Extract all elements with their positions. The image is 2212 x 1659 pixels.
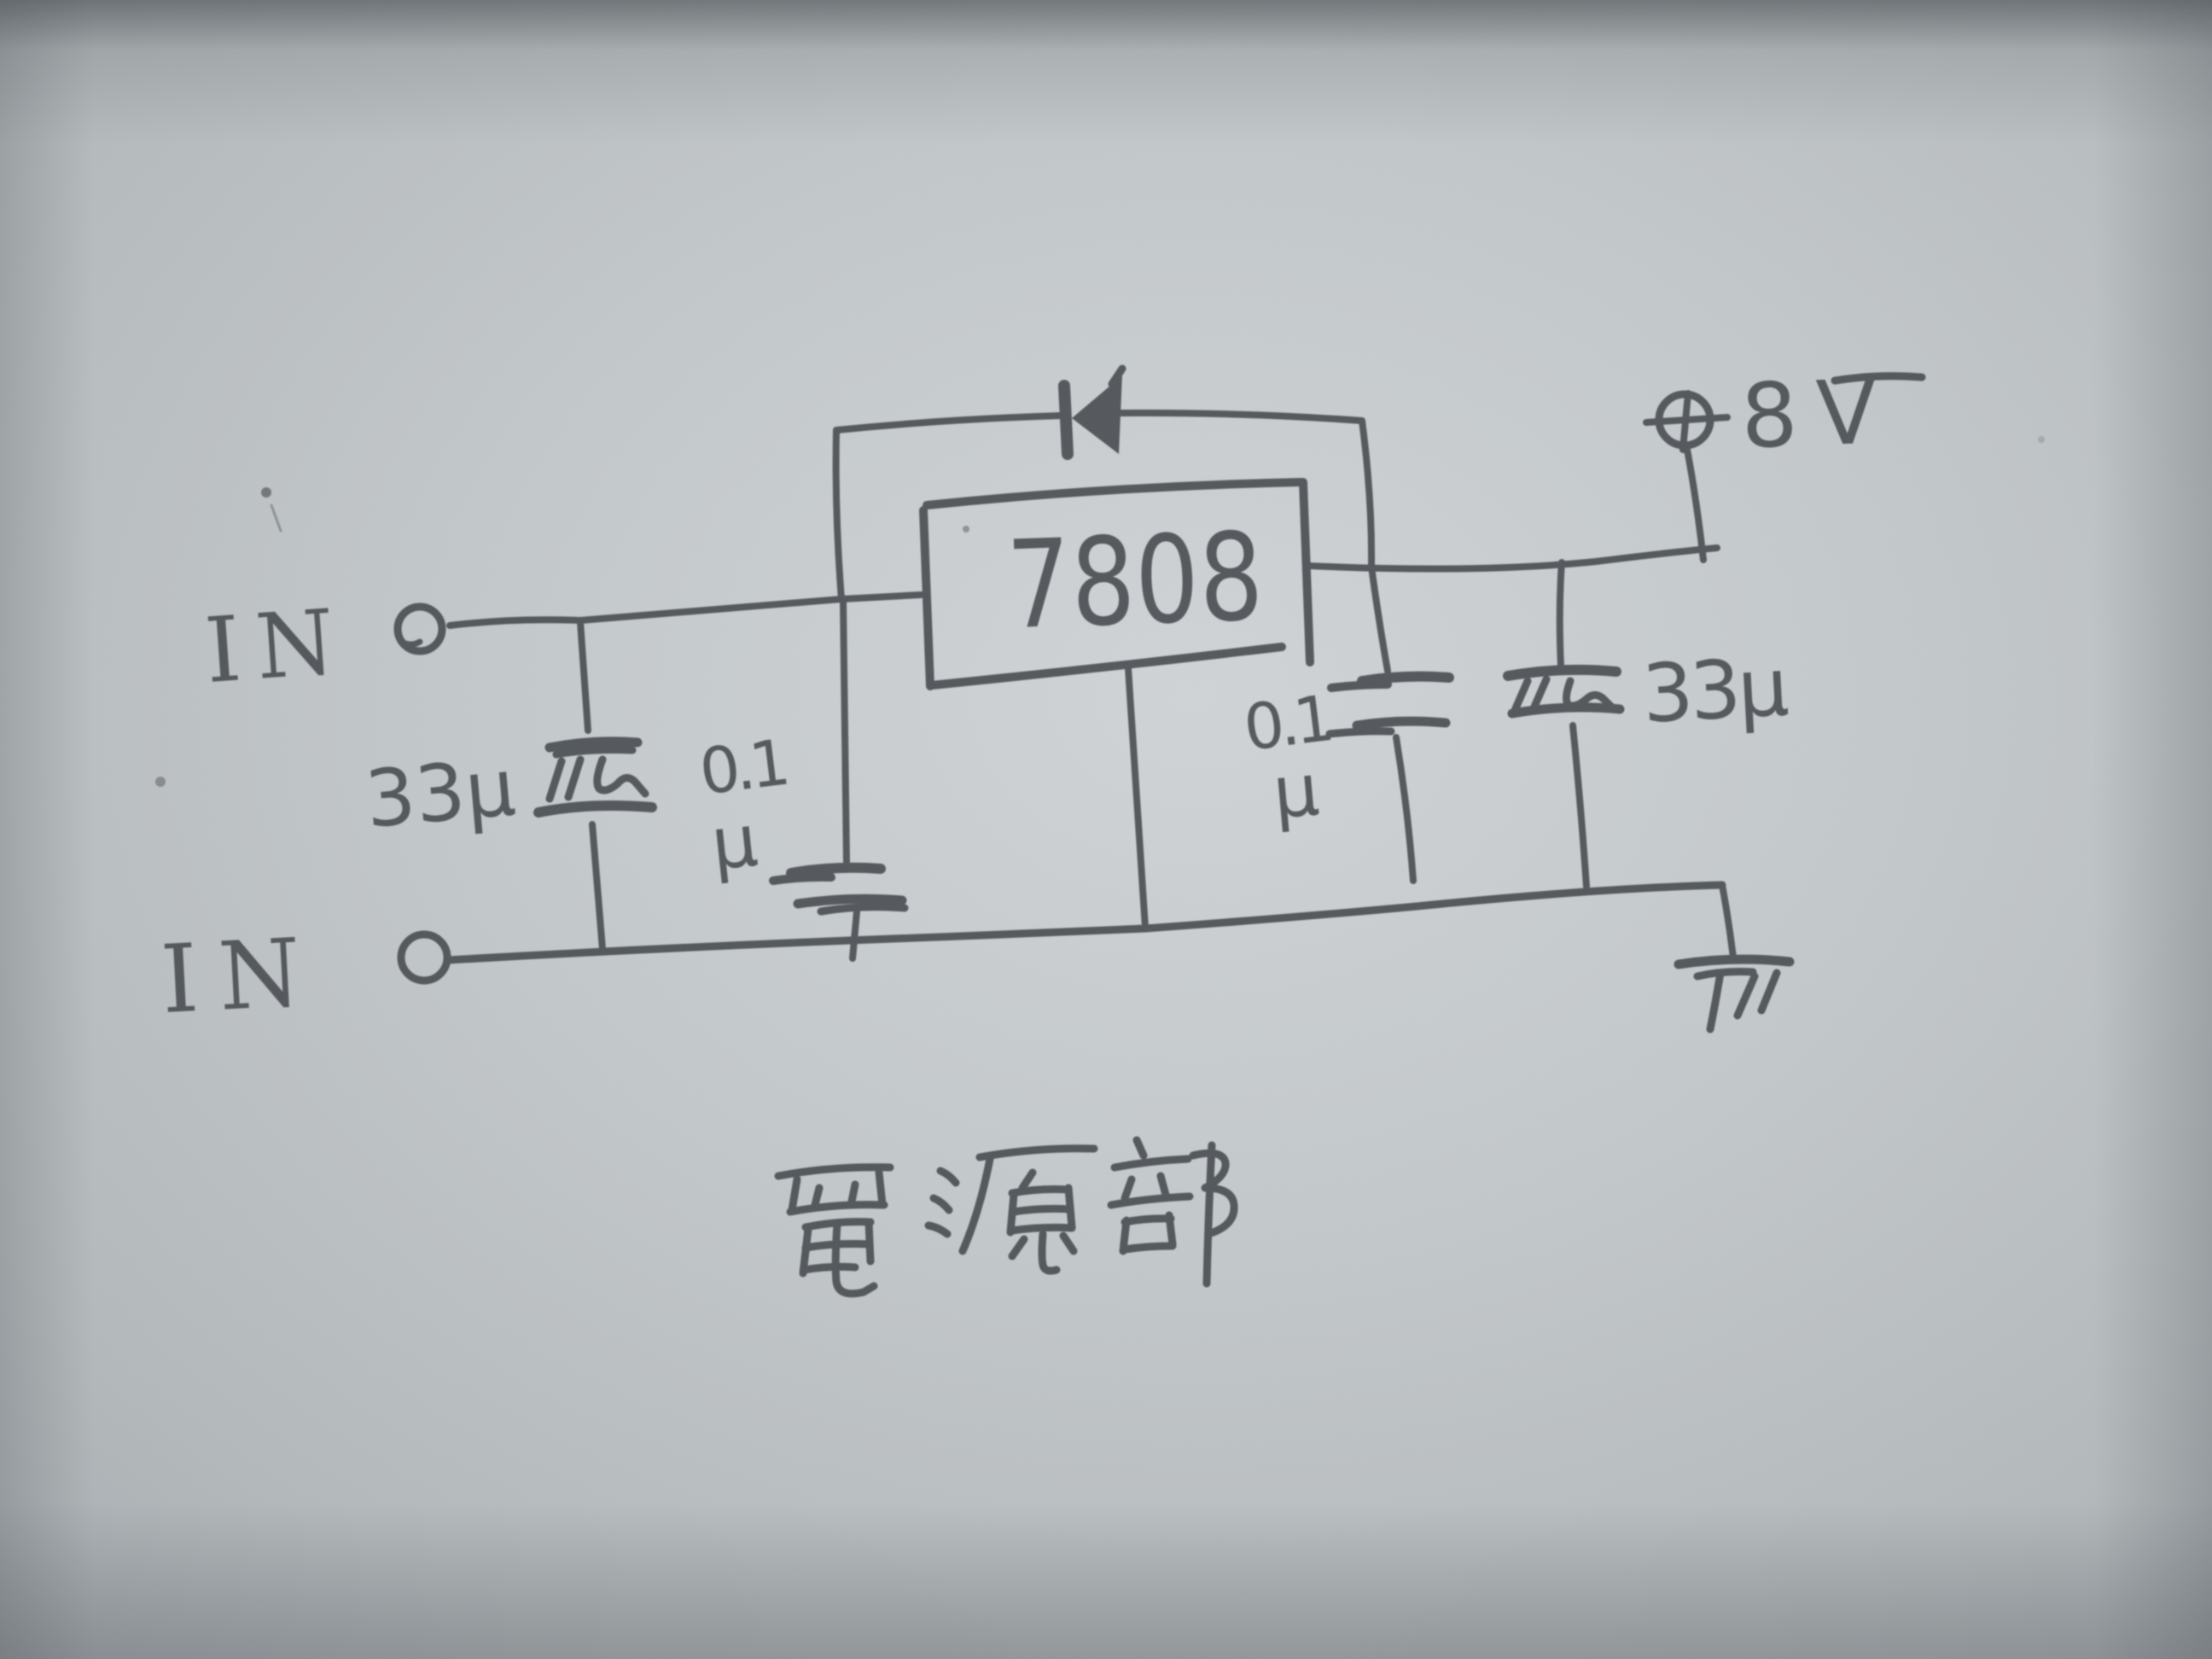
paper-grain-texture (0, 0, 2212, 1659)
pencil-schematic-photo: 電源部 ⊕ (0, 0, 2212, 1659)
schematic-canvas: 7808 IN IN 33µ (0, 0, 2212, 1659)
